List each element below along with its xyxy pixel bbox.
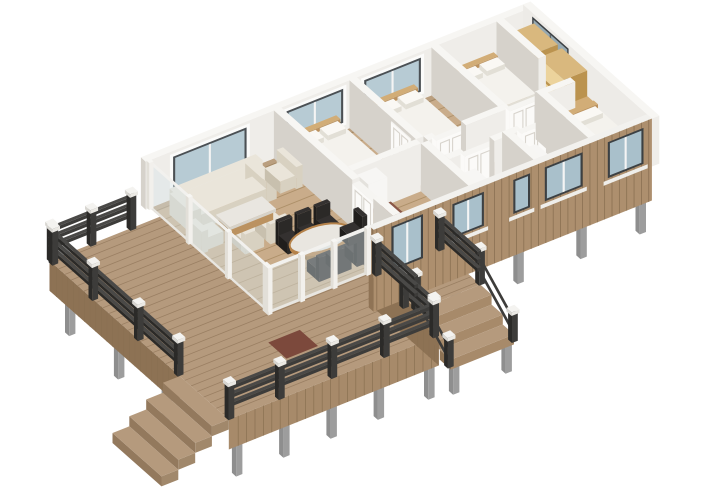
porch-railing-right-posts: [433, 207, 446, 251]
floor-plan-stage: [0, 0, 703, 502]
floor-plan-3d-render: [0, 0, 703, 502]
porch-railing-left-posts: [370, 233, 383, 277]
